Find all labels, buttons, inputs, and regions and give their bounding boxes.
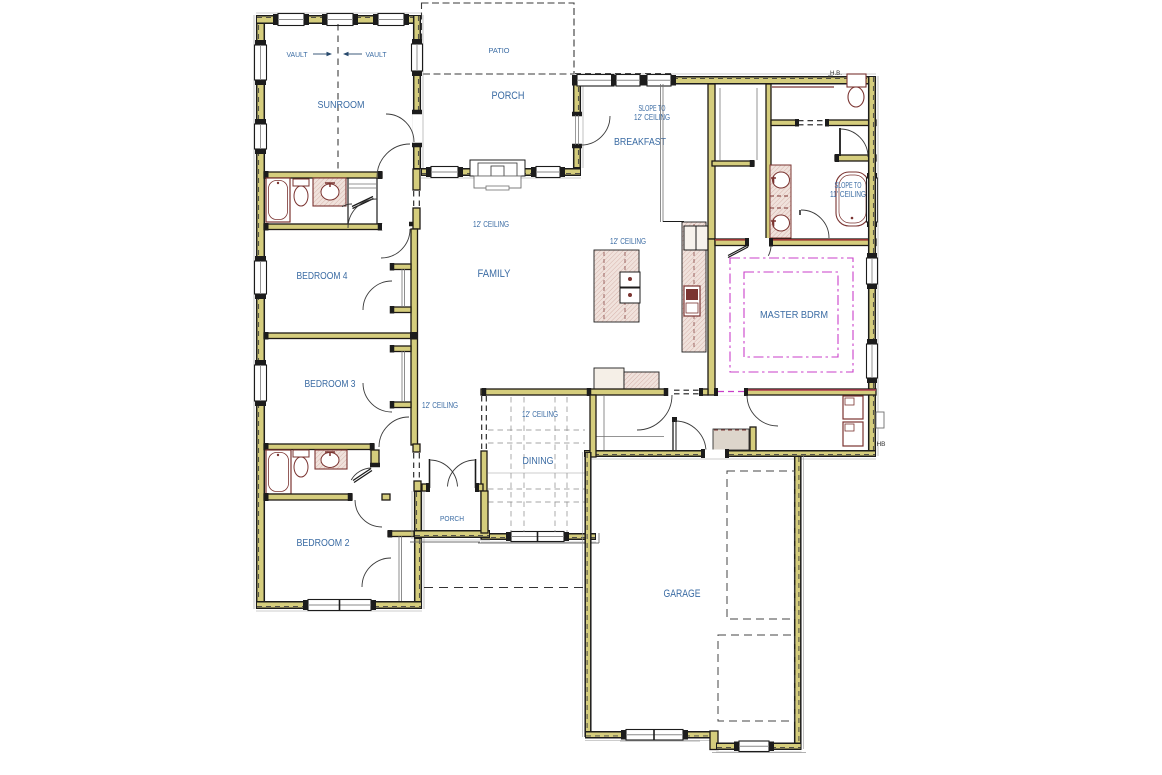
- svg-text:HB: HB: [877, 442, 886, 448]
- svg-text:VAULT: VAULT: [366, 50, 387, 59]
- svg-text:FAMILY: FAMILY: [478, 268, 512, 280]
- svg-text:BREAKFAST: BREAKFAST: [614, 136, 666, 148]
- svg-text:12' CEILING: 12' CEILING: [634, 113, 670, 122]
- svg-text:SLOPE TO: SLOPE TO: [835, 181, 862, 190]
- svg-text:12' CEILING: 12' CEILING: [522, 410, 558, 419]
- svg-text:12' CEILING: 12' CEILING: [473, 220, 509, 229]
- svg-text:BEDROOM 2: BEDROOM 2: [297, 537, 350, 549]
- svg-text:BEDROOM 4: BEDROOM 4: [297, 270, 348, 282]
- svg-text:11' CEILING: 11' CEILING: [830, 190, 866, 199]
- svg-text:MASTER BDRM: MASTER BDRM: [760, 309, 828, 321]
- svg-text:12' CEILING: 12' CEILING: [422, 401, 458, 410]
- svg-text:SUNROOM: SUNROOM: [318, 99, 365, 111]
- svg-text:GARAGE: GARAGE: [664, 588, 701, 600]
- svg-text:VAULT: VAULT: [287, 50, 308, 59]
- svg-text:BEDROOM 3: BEDROOM 3: [305, 378, 356, 390]
- svg-text:PORCH: PORCH: [440, 514, 464, 523]
- svg-text:PATIO: PATIO: [489, 48, 511, 55]
- svg-text:PORCH: PORCH: [492, 90, 525, 102]
- svg-text:DINING: DINING: [523, 455, 554, 467]
- svg-text:12' CEILING: 12' CEILING: [610, 237, 646, 246]
- svg-text:SLOPE TO: SLOPE TO: [639, 104, 666, 113]
